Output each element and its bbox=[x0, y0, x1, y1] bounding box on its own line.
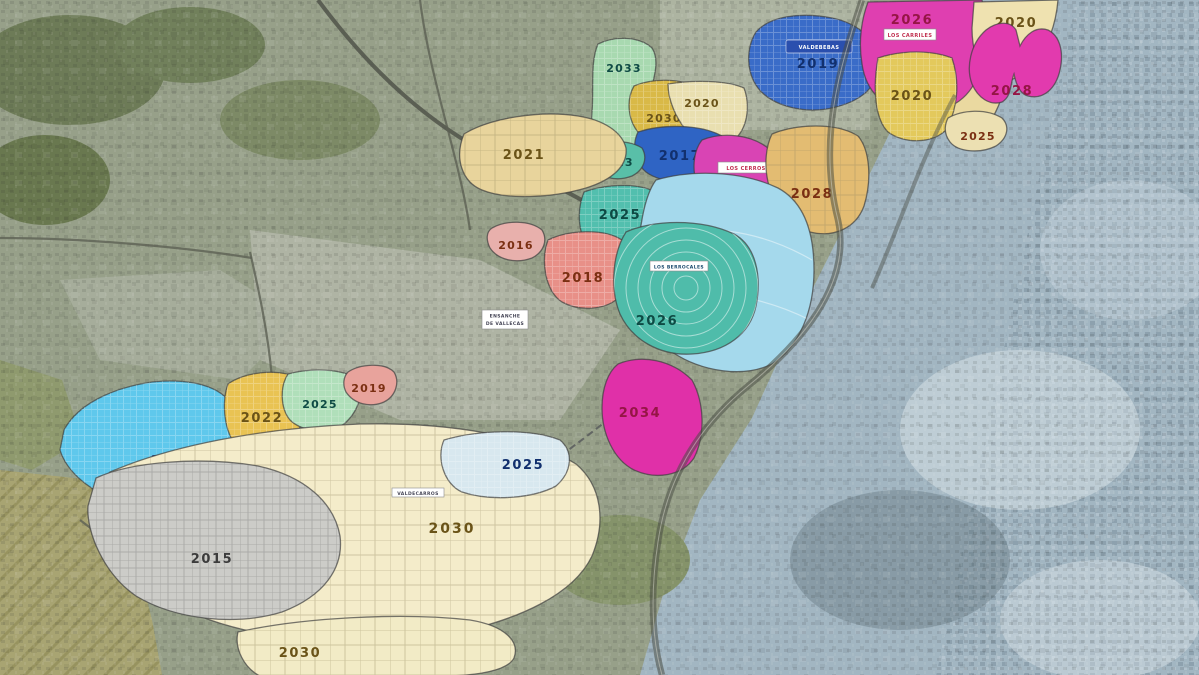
zone-name-label: LOS CERROS bbox=[726, 166, 765, 172]
zone-year-label: 2020 bbox=[891, 89, 934, 104]
zone-2020-yellow-grid: 2020 bbox=[875, 52, 957, 141]
zone-year-label: 2016 bbox=[498, 239, 533, 252]
zone-year-label: 2019 bbox=[797, 57, 840, 72]
zone-year-label: 2015 bbox=[191, 552, 234, 567]
zone-year-label: 2019 bbox=[351, 382, 386, 395]
zone-name-label: VALDEBEBAS bbox=[799, 45, 840, 51]
zone-name-label: LOS BERROCALES bbox=[654, 265, 704, 271]
zone-year-label: 2028 bbox=[991, 84, 1034, 99]
zone-year-label: 2022 bbox=[241, 411, 284, 426]
zone-year-label: 2025 bbox=[599, 208, 642, 223]
zone-year-label: 2025 bbox=[302, 398, 337, 411]
zone-2030-south: 2030 bbox=[237, 616, 515, 675]
zone-name-label: VALDECARROS bbox=[397, 491, 439, 497]
zone-2019-valdebebas: VALDEBEBAS 2019 bbox=[749, 15, 878, 110]
district-name-line2: DE VALLECAS bbox=[486, 321, 524, 327]
zone-name-label: LOS CARRILES bbox=[888, 33, 933, 39]
zone-year-label: 2034 bbox=[619, 406, 662, 421]
zone-shape bbox=[614, 223, 758, 355]
zone-2025-pale-blue: 2025 bbox=[441, 432, 569, 498]
zone-2028-magenta-blob: 2028 bbox=[969, 23, 1061, 103]
district-label-ensanche-vallecas: ENSANCHE DE VALLECAS bbox=[482, 310, 528, 329]
map-canvas: VALDEBEBAS 2019 2029 2026 LOS CARRILES 2… bbox=[0, 0, 1199, 675]
zone-year-label: 2030 bbox=[429, 521, 476, 537]
zone-year-label: 2018 bbox=[562, 271, 605, 286]
zone-year-label: 2025 bbox=[960, 130, 995, 143]
zone-2025-cream-small: 2025 bbox=[945, 111, 1007, 151]
zone-2016-pink: 2016 bbox=[487, 222, 545, 261]
zone-year-label: 2030 bbox=[279, 646, 322, 661]
zone-year-label: 2025 bbox=[502, 458, 545, 473]
zone-year-label: 2033 bbox=[606, 62, 641, 75]
zone-year-label: 2021 bbox=[503, 148, 546, 163]
zone-year-label: 2026 bbox=[636, 314, 679, 329]
zone-year-label: 2026 bbox=[891, 13, 934, 28]
zone-year-label: 2020 bbox=[684, 97, 719, 110]
urban-development-map: VALDEBEBAS 2019 2029 2026 LOS CARRILES 2… bbox=[0, 0, 1199, 675]
district-name-line1: ENSANCHE bbox=[490, 314, 521, 320]
zone-2019-salmon-small: 2019 bbox=[344, 365, 397, 405]
zone-year-label: 2028 bbox=[791, 187, 834, 202]
